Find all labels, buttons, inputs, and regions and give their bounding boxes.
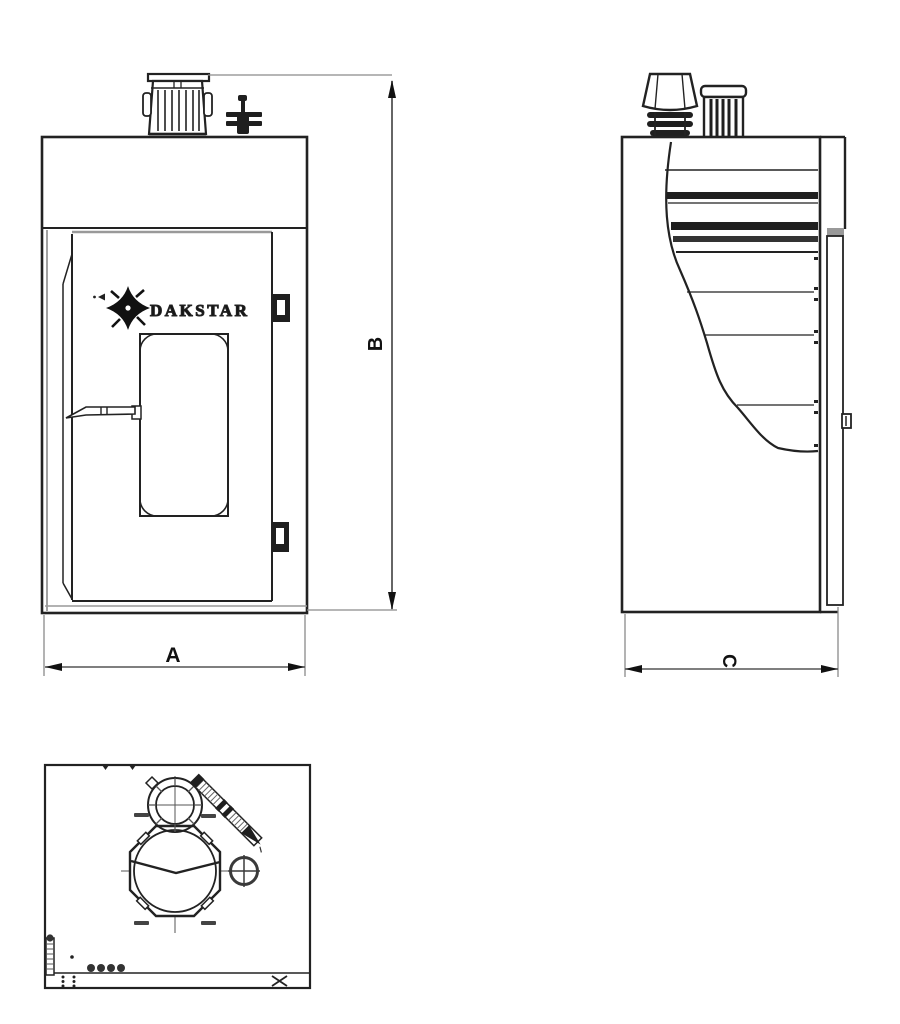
dim-a-arrow-left [45, 663, 62, 671]
technical-drawing-sheet: DAKSTAR [0, 0, 900, 1024]
small-dot [70, 955, 74, 959]
dim-c-arrow-left [625, 665, 642, 673]
top-view [45, 765, 310, 988]
dim-label-c: C [718, 654, 739, 668]
viewing-window [132, 334, 228, 516]
chimney-cap [643, 74, 697, 137]
chimney-rings [647, 112, 693, 136]
brand-text: DAKSTAR [150, 301, 249, 320]
roof-valve [226, 95, 262, 134]
hinge-pin [46, 934, 54, 975]
door-edge-strip [827, 236, 843, 605]
door-strip-cap [827, 228, 844, 236]
dim-b-arrow-top [388, 80, 396, 98]
dim-b: B [365, 80, 396, 610]
dim-label-b: B [365, 337, 387, 351]
hinge-top [273, 294, 290, 322]
dim-b-arrow-bottom [388, 592, 396, 610]
front-view: DAKSTAR [42, 74, 307, 613]
motor-ear-left [143, 93, 151, 116]
dim-a-arrow-right [288, 663, 305, 671]
hinge-bottom [272, 522, 289, 552]
motor-ear-right [204, 93, 212, 116]
side-view [622, 74, 851, 612]
fan-opening [130, 826, 220, 916]
side-door-latch [842, 414, 851, 428]
dim-label-a: A [165, 644, 180, 667]
dim-c: C [625, 654, 838, 673]
exhaust-motor-front [143, 74, 212, 134]
dim-a: A [45, 644, 305, 671]
side-body-outline [622, 137, 820, 612]
dim-c-arrow-right [821, 665, 838, 673]
